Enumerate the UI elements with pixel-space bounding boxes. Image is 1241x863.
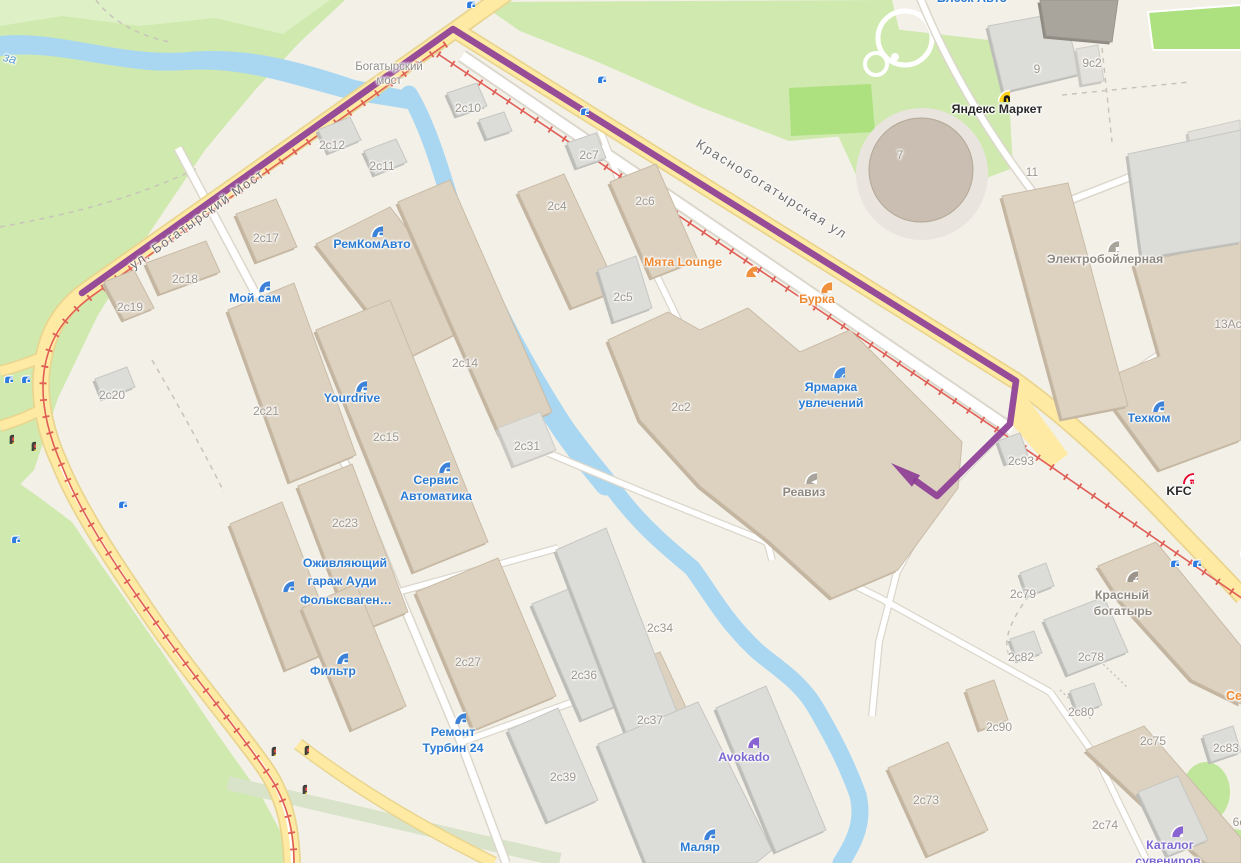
building-number-label: 2с4 xyxy=(547,199,566,213)
poi-label[interactable]: увлечений xyxy=(799,396,864,410)
poi-label[interactable]: Мой сам xyxy=(229,291,281,305)
tram-stop-icon[interactable] xyxy=(1227,537,1241,557)
poi-label[interactable]: Avokado xyxy=(718,750,769,764)
poi-label[interactable]: Фольксваген… xyxy=(300,593,392,607)
cocktail-icon[interactable] xyxy=(727,247,757,277)
flag-icon[interactable] xyxy=(1089,222,1119,252)
poi-label[interactable]: Yourdrive xyxy=(324,391,381,405)
building-number-label: 2с10 xyxy=(455,101,481,115)
building-number-label: 2с12 xyxy=(319,138,345,152)
tram-stop-icon[interactable] xyxy=(8,363,30,383)
graduation-icon[interactable] xyxy=(787,454,817,484)
building-number-label: 2с80 xyxy=(1068,705,1094,719)
basket-icon[interactable] xyxy=(815,348,845,378)
building-number-label: 2с15 xyxy=(373,430,399,444)
poi-label[interactable]: Ремонт xyxy=(431,725,475,739)
car-icon[interactable] xyxy=(264,562,294,592)
building-number-label: 2с21 xyxy=(253,404,279,418)
building-number-label: 2с90 xyxy=(986,720,1012,734)
building-number-label: 2с75 xyxy=(1140,734,1166,748)
tram-stop-icon[interactable] xyxy=(0,523,20,543)
yandex-market-icon[interactable] xyxy=(980,72,1010,102)
tram-stop-icon[interactable] xyxy=(1179,547,1201,567)
tram-stop-icon[interactable] xyxy=(584,63,606,83)
coffee-icon[interactable] xyxy=(802,263,832,293)
traffic-light-icon xyxy=(0,422,14,444)
poi-label[interactable]: Маляр xyxy=(680,840,720,854)
building-number-label: 9 xyxy=(1034,62,1041,76)
car-icon[interactable] xyxy=(318,634,348,664)
building-number-label: 2с73 xyxy=(913,793,939,807)
building-number-label: 2с17 xyxy=(253,231,279,245)
poi-label[interactable]: Оживляющий xyxy=(303,556,387,570)
street-bogatyrsky-most: ул. Богатырский Мост xyxy=(127,166,267,272)
label-6s-partial: 6с xyxy=(1233,815,1241,829)
tram-stop-icon[interactable] xyxy=(567,95,589,115)
building-number-label: 2с39 xyxy=(550,770,576,784)
map-canvas[interactable]: 2с102с122с112с172с182с192с142с202с212с15… xyxy=(0,0,1241,863)
building-number-label: 2с93 xyxy=(1008,454,1034,468)
street-krasnobogatyrskaya: Краснобогатырская ул xyxy=(694,136,851,242)
building-number-label: 2с2 xyxy=(671,400,690,414)
poi-label[interactable]: гараж Ауди xyxy=(307,574,376,588)
poi-label[interactable]: Реавиз xyxy=(783,485,826,499)
building-number-label: 7 xyxy=(897,148,904,162)
traffic-light-icon xyxy=(262,734,276,756)
building-number-label: 2с11 xyxy=(369,159,394,173)
poi-label[interactable]: Ярмарка xyxy=(805,380,857,394)
kfc-icon[interactable] xyxy=(1164,454,1194,484)
tram-stop-icon[interactable] xyxy=(105,488,127,508)
building-number-label: 2с31 xyxy=(514,439,540,453)
building-number-label: 2с7 xyxy=(579,148,598,162)
building-number-label: 2с82 xyxy=(1008,650,1034,664)
poi-label[interactable]: Каталог xyxy=(1146,838,1194,852)
car-icon[interactable] xyxy=(353,207,383,237)
building-number-label: 2с6 xyxy=(635,194,654,208)
car-icon[interactable] xyxy=(685,810,715,840)
label-13a-partial: 13Ас xyxy=(1214,317,1241,331)
poi-blesk-avto-partial: Блеск Авто xyxy=(937,0,1007,5)
bed-icon[interactable] xyxy=(729,718,759,748)
poi-label[interactable]: Красный xyxy=(1095,588,1149,602)
poi-label[interactable]: KFC xyxy=(1166,484,1191,498)
car-icon[interactable] xyxy=(240,262,270,292)
poi-label[interactable]: Турбин 24 xyxy=(423,741,484,755)
building-number-label: 2с36 xyxy=(571,668,597,682)
building-number-label: 11 xyxy=(1026,165,1038,179)
building-number-label: 2с5 xyxy=(613,290,632,304)
building-number-label: 2с27 xyxy=(455,655,481,669)
building-number-label: 2с20 xyxy=(99,388,125,402)
building-number-label: 2с83 xyxy=(1213,741,1239,755)
poi-label[interactable]: Сервис xyxy=(413,473,458,487)
car-icon[interactable] xyxy=(420,443,450,473)
poi-label[interactable]: Автоматика xyxy=(400,489,472,503)
poi-label[interactable]: богатырь xyxy=(1094,604,1153,618)
building-number-label: 2с34 xyxy=(647,621,673,635)
poi-label[interactable]: Мята Lounge xyxy=(644,255,722,269)
poi-label[interactable]: Техком xyxy=(1128,411,1171,425)
poi-label[interactable]: Электробойлерная xyxy=(1047,252,1163,266)
river-label-partial: за xyxy=(2,49,18,67)
poi-label[interactable]: РемКомАвто xyxy=(333,237,410,251)
car-icon[interactable] xyxy=(436,694,466,724)
poi-se-partial: Се xyxy=(1226,689,1241,703)
building-number-label: 2с18 xyxy=(172,272,198,286)
poi-label[interactable]: сувениров xyxy=(1135,854,1200,863)
bridge-label-line1: Богатырский xyxy=(355,61,423,73)
building-number-label: 2с19 xyxy=(117,300,143,314)
building-number-label: 2с23 xyxy=(332,516,358,530)
poi-label[interactable]: Яндекс Маркет xyxy=(952,102,1043,116)
traffic-light-icon xyxy=(22,429,36,451)
building-number-label: 2с78 xyxy=(1078,650,1104,664)
building-number-label: 2с37 xyxy=(637,713,663,727)
car-icon[interactable] xyxy=(1134,382,1164,412)
car-icon[interactable] xyxy=(337,362,367,392)
traffic-light-icon xyxy=(295,733,309,755)
labels-layer: 2с102с122с112с172с182с192с142с202с212с15… xyxy=(0,0,1241,863)
tram-stop-icon[interactable] xyxy=(1157,547,1179,567)
poi-label[interactable]: Бурка xyxy=(799,292,835,306)
building-number-label: 9с2 xyxy=(1082,56,1101,70)
poi-label[interactable]: Фильтр xyxy=(310,664,356,678)
traffic-light-icon xyxy=(293,772,307,794)
briefcase-icon[interactable] xyxy=(1108,552,1138,582)
building-number-label: 2с74 xyxy=(1092,818,1118,832)
dot-icon[interactable] xyxy=(1153,807,1183,837)
building-number-label: 2с14 xyxy=(452,356,478,370)
bridge-label-line2: мост xyxy=(376,75,401,87)
building-number-label: 2с79 xyxy=(1010,587,1036,601)
tram-stop-icon[interactable] xyxy=(453,0,475,8)
